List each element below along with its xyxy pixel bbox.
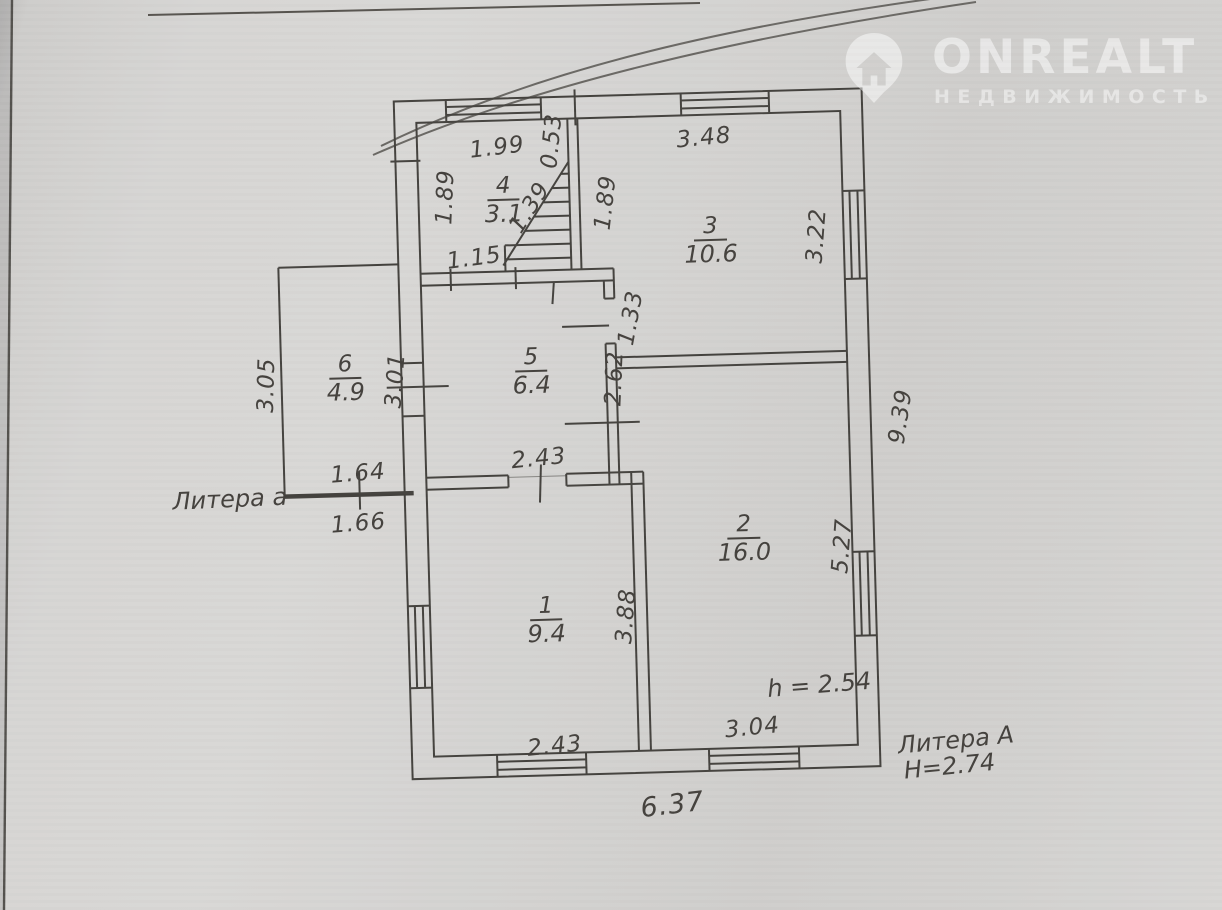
onrealt-watermark: ONREALT НЕДВИЖИМОСТЬ: [844, 22, 1204, 117]
dim-room2-window: 5.27: [827, 518, 857, 575]
window: [681, 91, 770, 115]
watermark-tagline: НЕДВИЖИМОСТЬ: [934, 86, 1216, 108]
room-area: 9.4: [527, 620, 566, 647]
room-area: 16.0: [717, 539, 771, 567]
room-1-label: 1 9.4: [526, 593, 566, 647]
house-pin-icon: [844, 28, 904, 108]
window: [852, 551, 876, 636]
room-6-label: 6 4.9: [326, 352, 366, 406]
room-area: 6.4: [512, 372, 551, 399]
room-2-label: 2 16.0: [717, 511, 772, 566]
room-3-label: 3 10.6: [683, 213, 738, 268]
dim-room3-width: 3.48: [675, 122, 732, 153]
floor-plan: 1.99 0.53 3.48 1.89 1.39 1.89 3.22 1.15 …: [0, 0, 1222, 910]
dim-room2-bottom: 3.04: [724, 712, 781, 743]
room-number: 2: [727, 512, 760, 540]
dim-centre-wall: 2.62: [600, 350, 628, 406]
scanned-floor-plan-page: 1.99 0.53 3.48 1.89 1.39 1.89 3.22 1.15 …: [0, 0, 1222, 910]
dim-room3-window: 3.22: [802, 207, 832, 264]
litera-annex-label: Литера а: [172, 483, 288, 516]
room-area: 3.1: [484, 200, 523, 227]
window: [446, 97, 542, 122]
dim-room1-depth: 3.88: [611, 588, 641, 645]
dim-room4-depth: 1.89: [431, 169, 459, 225]
room-number: 4: [486, 173, 519, 201]
watermark-brand: ONREALT: [932, 30, 1198, 85]
window: [842, 190, 866, 279]
dim-annex-inner: 3.01: [380, 352, 410, 409]
room-number: 3: [694, 214, 727, 242]
room-number: 5: [514, 345, 547, 373]
room-number: 6: [328, 352, 361, 380]
window: [408, 606, 432, 689]
dim-stair-top: 0.53: [536, 112, 567, 169]
dim-room1-bottom: 2.43: [526, 731, 583, 762]
room-area: 4.9: [326, 379, 365, 406]
room-area: 10.6: [684, 240, 738, 268]
room-number: 1: [529, 593, 562, 621]
dim-annex-side: 3.05: [253, 357, 280, 413]
room-5-label: 5 6.4: [512, 345, 552, 399]
floor-plan-walls: [0, 0, 1222, 910]
room-4-label: 4 3.1: [484, 173, 524, 227]
window: [709, 746, 800, 771]
dim-annex-outer-width: 1.66: [330, 508, 387, 538]
dim-room5-bottom: 2.43: [510, 443, 567, 474]
dim-annex-inner-width: 1.64: [330, 458, 387, 488]
